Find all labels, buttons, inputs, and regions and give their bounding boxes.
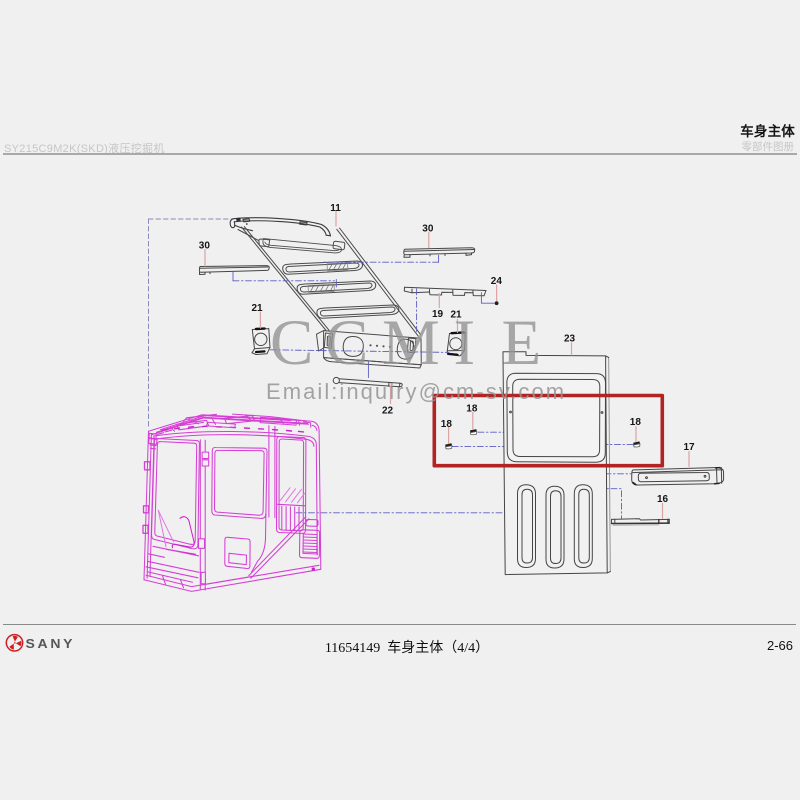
- svg-text:22: 22: [382, 406, 394, 417]
- svg-text:30: 30: [199, 241, 211, 252]
- svg-text:11: 11: [330, 203, 341, 214]
- svg-text:30: 30: [422, 224, 434, 235]
- svg-text:18: 18: [441, 419, 453, 430]
- svg-text:18: 18: [630, 417, 642, 428]
- svg-text:18: 18: [466, 404, 478, 415]
- svg-text:24: 24: [491, 276, 503, 287]
- svg-text:21: 21: [252, 303, 264, 314]
- svg-text:23: 23: [564, 334, 576, 345]
- svg-text:16: 16: [657, 494, 669, 505]
- svg-text:17: 17: [684, 442, 696, 453]
